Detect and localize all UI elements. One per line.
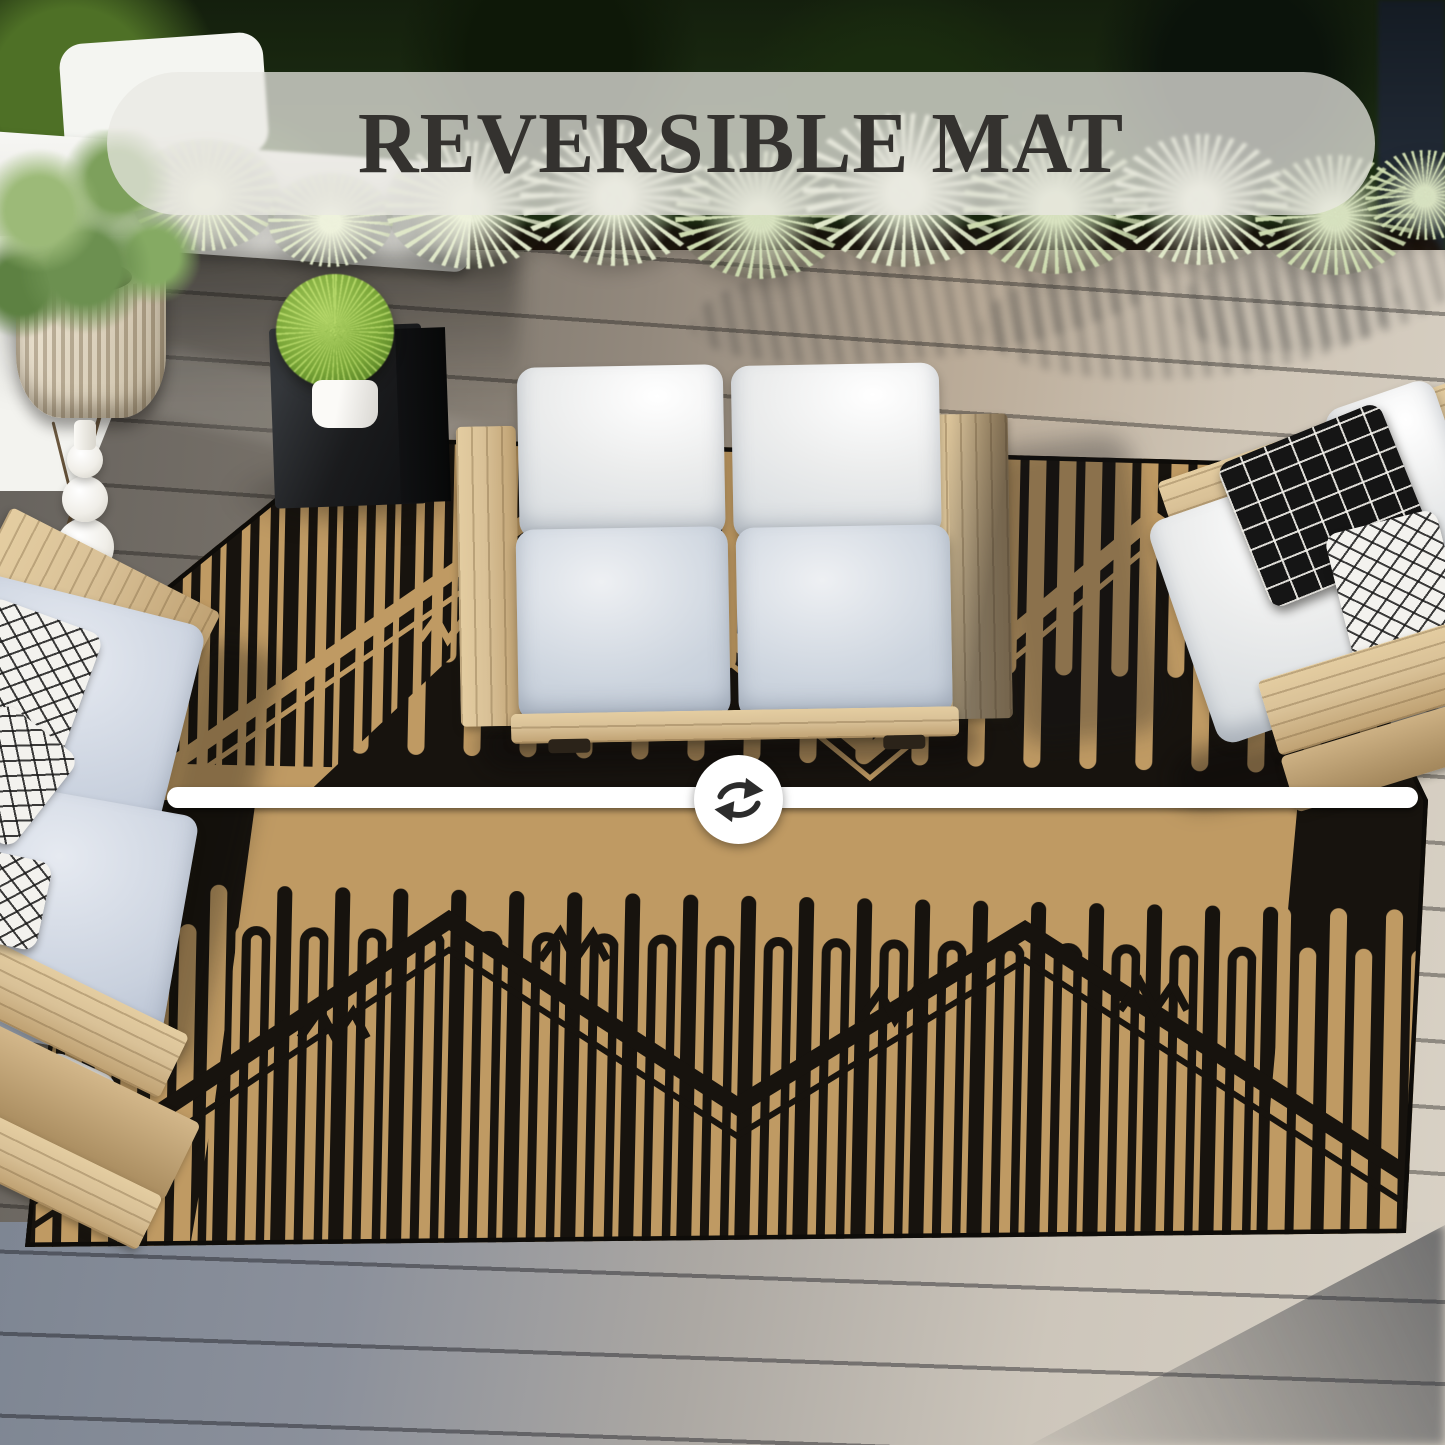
vase-orb xyxy=(62,476,108,522)
vase-neck xyxy=(74,420,96,450)
loveseat-seat-cushion xyxy=(736,524,953,720)
armrest-shade xyxy=(948,413,1013,719)
black-side-table-panel xyxy=(395,327,451,503)
swap-badge xyxy=(694,755,783,844)
reversible-banner: REVERSIBLE MAT xyxy=(107,72,1375,215)
loveseat xyxy=(447,353,1024,755)
loveseat-back-cushion xyxy=(517,364,726,540)
banner-label: REVERSIBLE MAT xyxy=(358,93,1124,194)
topiary-ball-plant xyxy=(276,274,394,388)
swap-arrows-icon xyxy=(711,772,767,828)
loveseat-armrest-left xyxy=(456,426,521,727)
loveseat-leg xyxy=(548,739,590,754)
patio-product-photo: REVERSIBLE MAT xyxy=(0,0,1445,1445)
loveseat-seat-cushion xyxy=(516,526,731,722)
reversible-divider-bar xyxy=(167,787,1418,808)
white-plant-pot xyxy=(312,380,378,428)
loveseat-leg xyxy=(883,735,925,750)
loveseat-back-cushion xyxy=(731,362,942,540)
